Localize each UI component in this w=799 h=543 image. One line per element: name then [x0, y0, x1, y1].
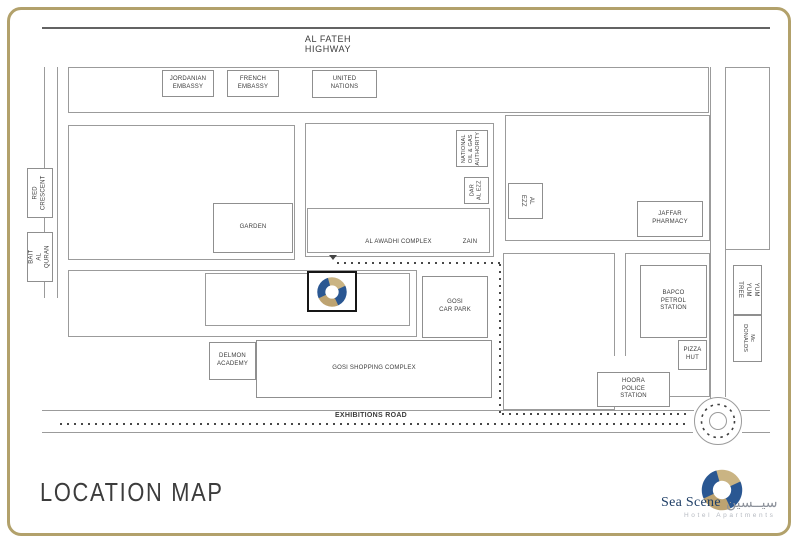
location-map-page: JORDANIAN EMBASSY FRENCH EMBASSY UNITED …	[0, 0, 799, 543]
gold-frame-border	[7, 7, 791, 536]
